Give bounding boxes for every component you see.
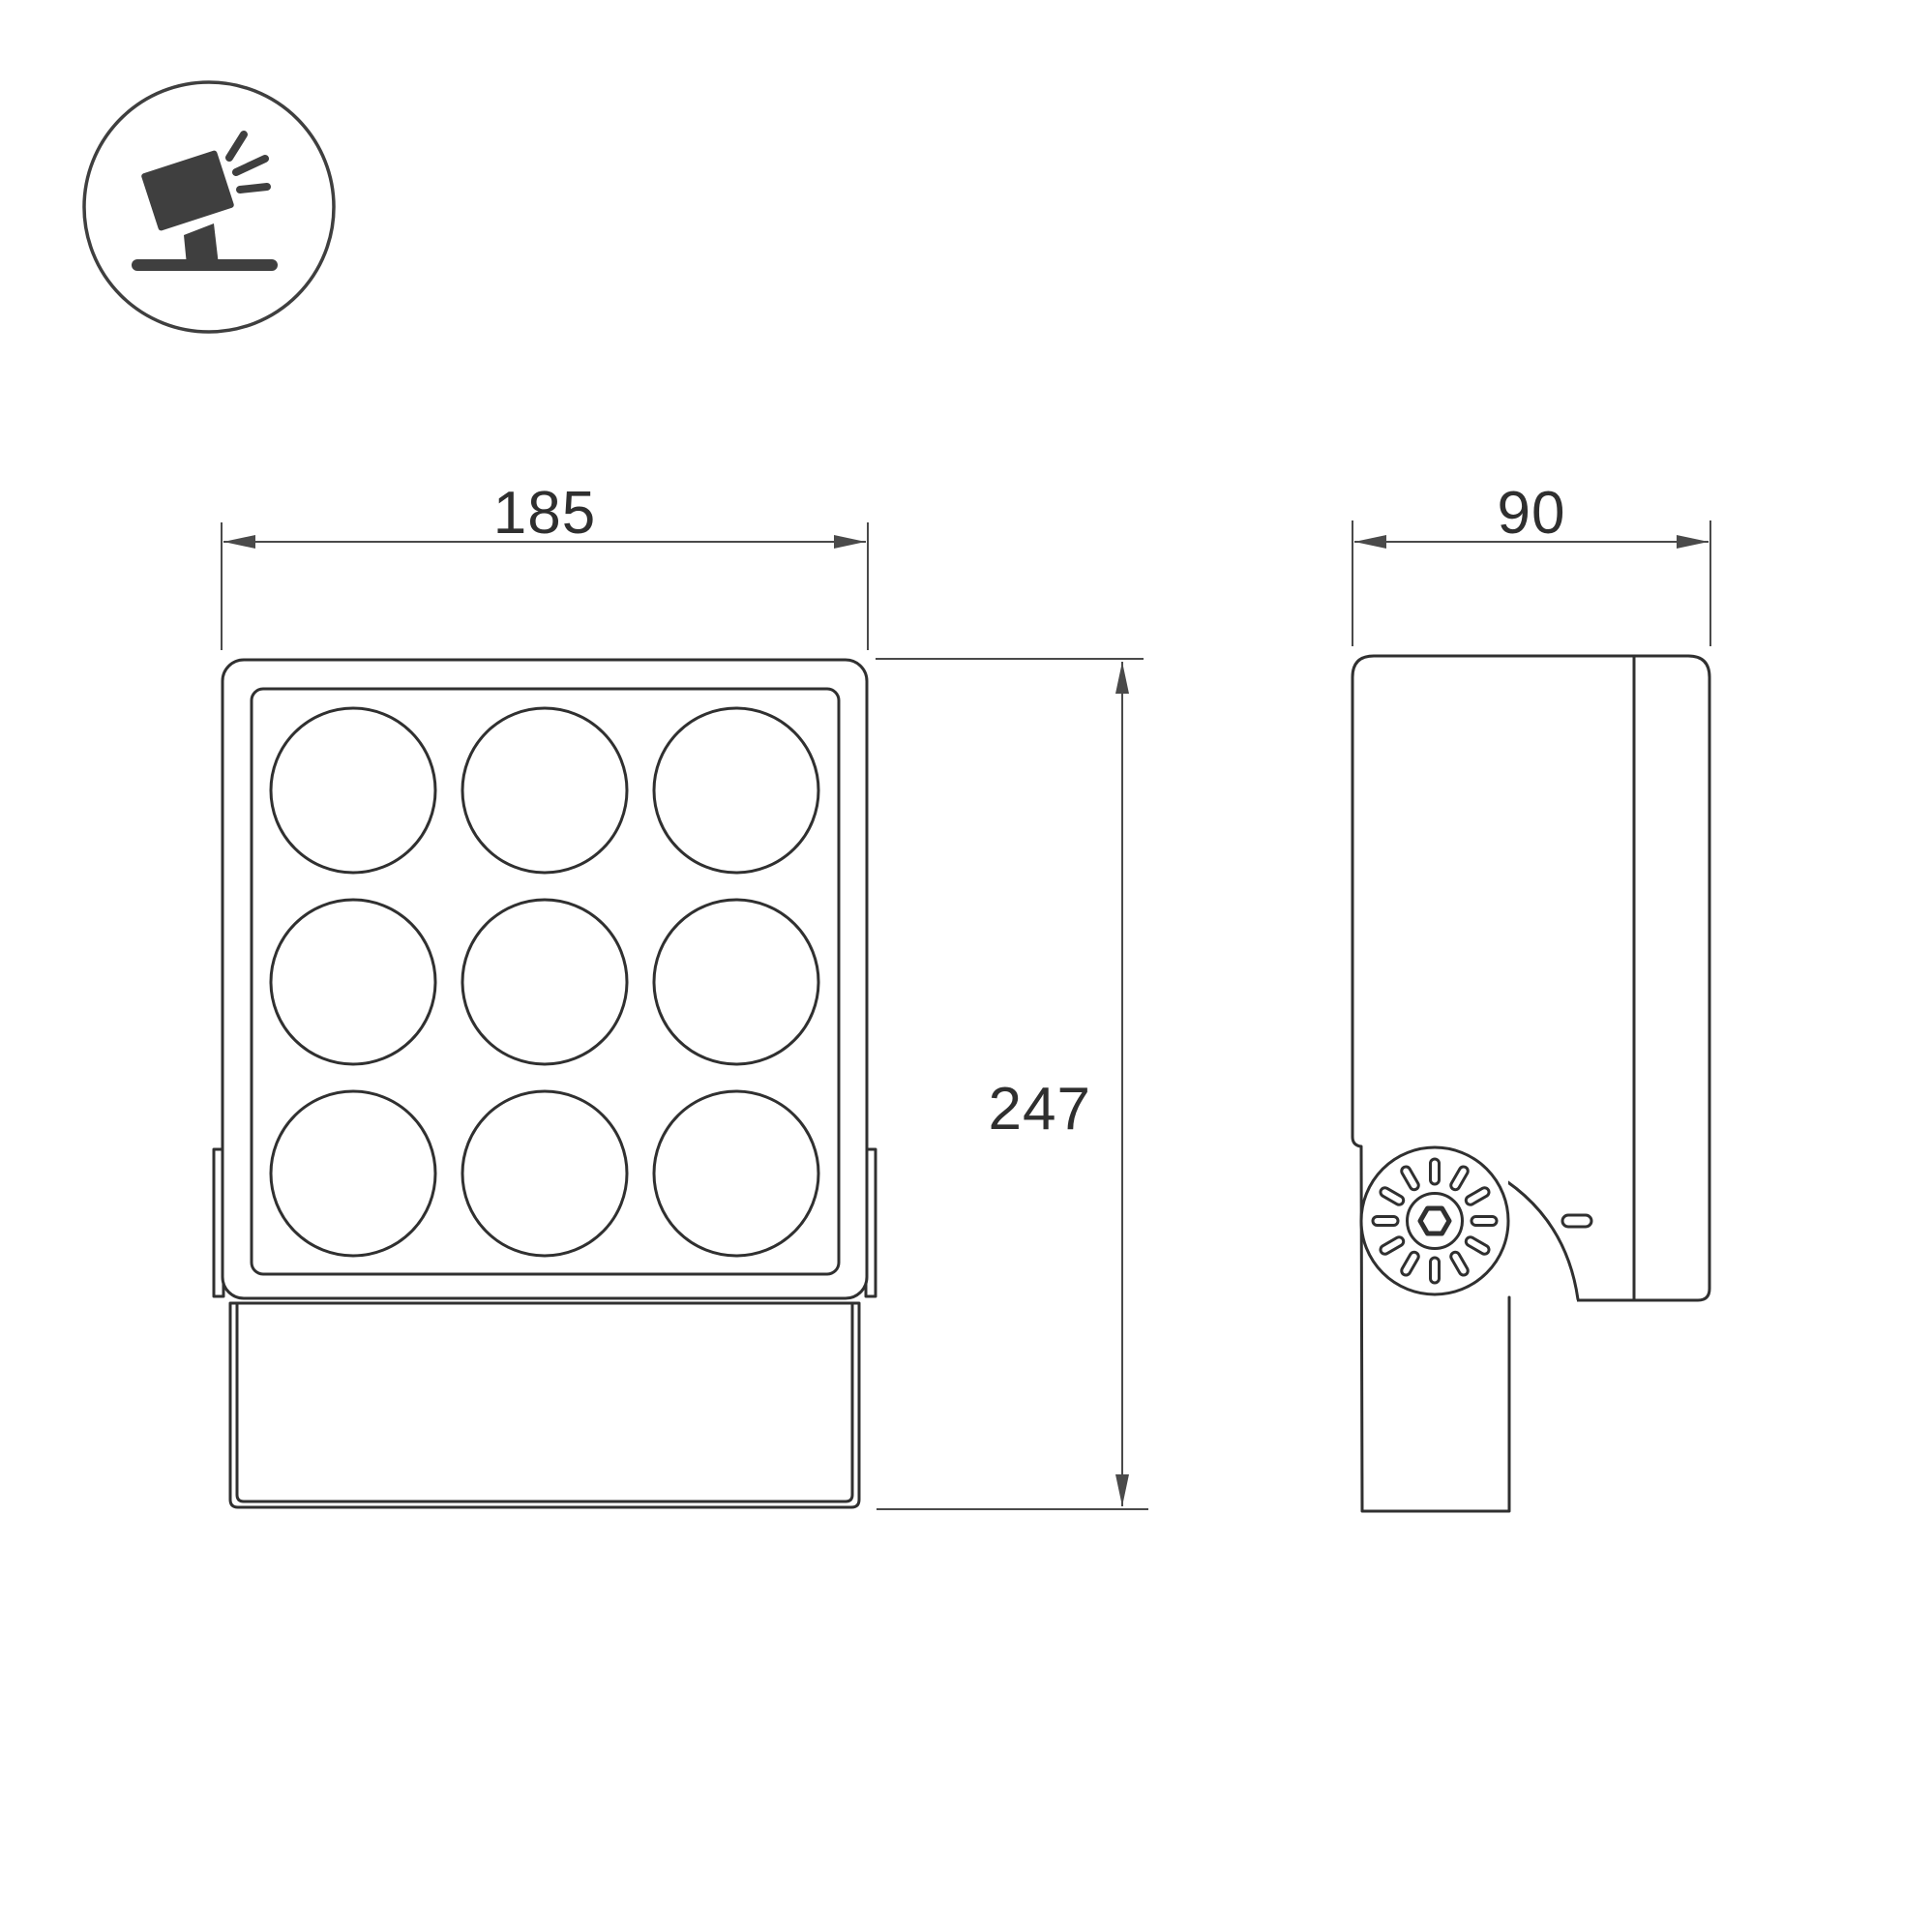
dimension-depth: 90 [1352, 480, 1710, 646]
icon-light-ray-1 [229, 134, 244, 158]
technical-drawing-page: 185 247 90 [0, 0, 1932, 1932]
depth-value: 90 [1498, 480, 1566, 547]
front-view [214, 660, 876, 1507]
arrowhead-top [1115, 662, 1129, 694]
icon-ground-bar [132, 259, 278, 271]
front-housing [223, 660, 867, 1298]
arrowhead-bottom [1115, 1474, 1129, 1506]
arrowhead-left [1354, 535, 1386, 549]
dimension-front-width: 185 [222, 480, 868, 650]
icon-floodlight-stand [184, 223, 219, 265]
dimension-height: 247 [876, 659, 1148, 1509]
side-view [1352, 656, 1709, 1511]
dimension-drawing: 185 247 90 [0, 0, 1932, 1932]
floodlight-on-stand-icon [84, 82, 334, 332]
icon-light-ray-2 [236, 159, 265, 172]
icon-floodlight-head [140, 150, 234, 231]
hinge-hex-screw-icon [1420, 1208, 1449, 1234]
arrowhead-right [1677, 535, 1709, 549]
driver-box [230, 1303, 859, 1507]
icon-light-ray-3 [240, 187, 267, 190]
bracket-slot [1562, 1215, 1591, 1227]
height-value: 247 [989, 1076, 1091, 1143]
front-width-value: 185 [493, 480, 596, 547]
arrowhead-left [223, 535, 255, 549]
arrowhead-right [834, 535, 866, 549]
